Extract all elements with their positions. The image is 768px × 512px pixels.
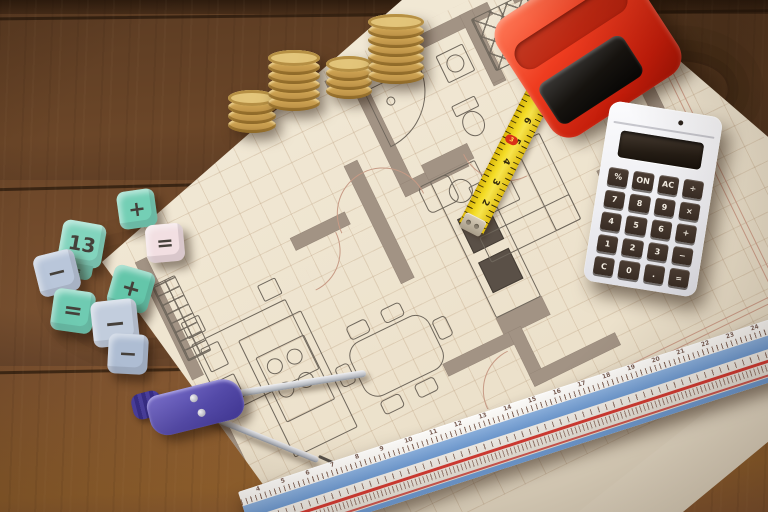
tape-number: 3 (488, 174, 502, 189)
ruler-number: 5 (280, 477, 286, 485)
die: = (49, 287, 96, 334)
die-symbol: = (62, 297, 85, 325)
calculator-key: 1 (596, 234, 619, 255)
ruler-number: 23 (725, 331, 735, 340)
photo-floorplan-scene: 765432 3 %ONAC÷789×456+123−C0.= +13==−+=… (0, 0, 768, 512)
calculator-key: 3 (646, 242, 669, 263)
chair (413, 376, 439, 399)
die: − (107, 333, 149, 375)
die-symbol: − (44, 258, 69, 288)
coin-stack (326, 56, 372, 108)
ruler-number: 7 (329, 461, 335, 469)
calculator-key: ON (632, 171, 655, 192)
ruler-number: 22 (700, 339, 710, 348)
rivet (473, 223, 480, 230)
die-symbol: − (118, 341, 138, 367)
coin-stack (268, 50, 320, 120)
calculator-key: 8 (628, 193, 651, 214)
ruler-number: 24 (750, 323, 760, 332)
ruler-number: 8 (354, 453, 360, 461)
calculator-key: 6 (650, 219, 673, 240)
calculator-key: % (607, 167, 630, 188)
calculator-key: C (593, 256, 616, 277)
die-symbol: = (155, 230, 175, 255)
ruler-number: 15 (527, 395, 537, 404)
calculator-hole (678, 120, 684, 126)
coin-stack (368, 14, 424, 93)
die-symbol: + (127, 196, 148, 222)
calculator-key: 2 (621, 238, 644, 259)
coin (326, 56, 372, 72)
calculator-key: + (674, 223, 697, 244)
tape-number: 4 (499, 153, 513, 168)
chair (379, 393, 405, 416)
ruler-number: 4 (255, 485, 261, 493)
calculator-key: 7 (603, 189, 626, 210)
ruler-number: 13 (478, 412, 488, 421)
ruler-number: 21 (675, 347, 685, 356)
rivet (465, 219, 472, 226)
calculator-key: . (642, 264, 665, 285)
ruler-number: 16 (552, 387, 562, 396)
ruler-number: 14 (502, 404, 512, 413)
compass-screw (189, 393, 199, 403)
ruler-number: 19 (626, 363, 636, 372)
ruler-number: 9 (379, 445, 385, 453)
calculator-key: 9 (653, 197, 676, 218)
tape-number: 6 (520, 112, 534, 127)
calculator-key: 4 (600, 211, 623, 232)
ruler-number: 20 (651, 355, 661, 364)
calculator-key: 5 (625, 215, 648, 236)
calculator-key: × (678, 201, 701, 222)
ruler-number: 10 (403, 436, 413, 445)
calculator-key: AC (657, 175, 680, 196)
ruler-number: 12 (453, 420, 463, 429)
calculator-keypad: %ONAC÷789×456+123−C0.= (593, 167, 705, 289)
tape-number: 2 (478, 194, 492, 209)
ruler-number: 18 (601, 371, 611, 380)
die: = (144, 222, 185, 263)
calculator-key: = (667, 268, 690, 289)
coin (368, 14, 424, 30)
coin (268, 50, 320, 66)
ruler-number: 11 (428, 428, 438, 437)
calculator-display (617, 130, 704, 170)
nightstand (257, 277, 283, 302)
ruler-number: 6 (305, 469, 311, 477)
calculator-key: ÷ (682, 179, 705, 200)
calculator-key: − (671, 246, 694, 267)
compass-screw (197, 408, 207, 418)
calculator-key: 0 (618, 260, 641, 281)
ruler-number: 17 (577, 379, 587, 388)
